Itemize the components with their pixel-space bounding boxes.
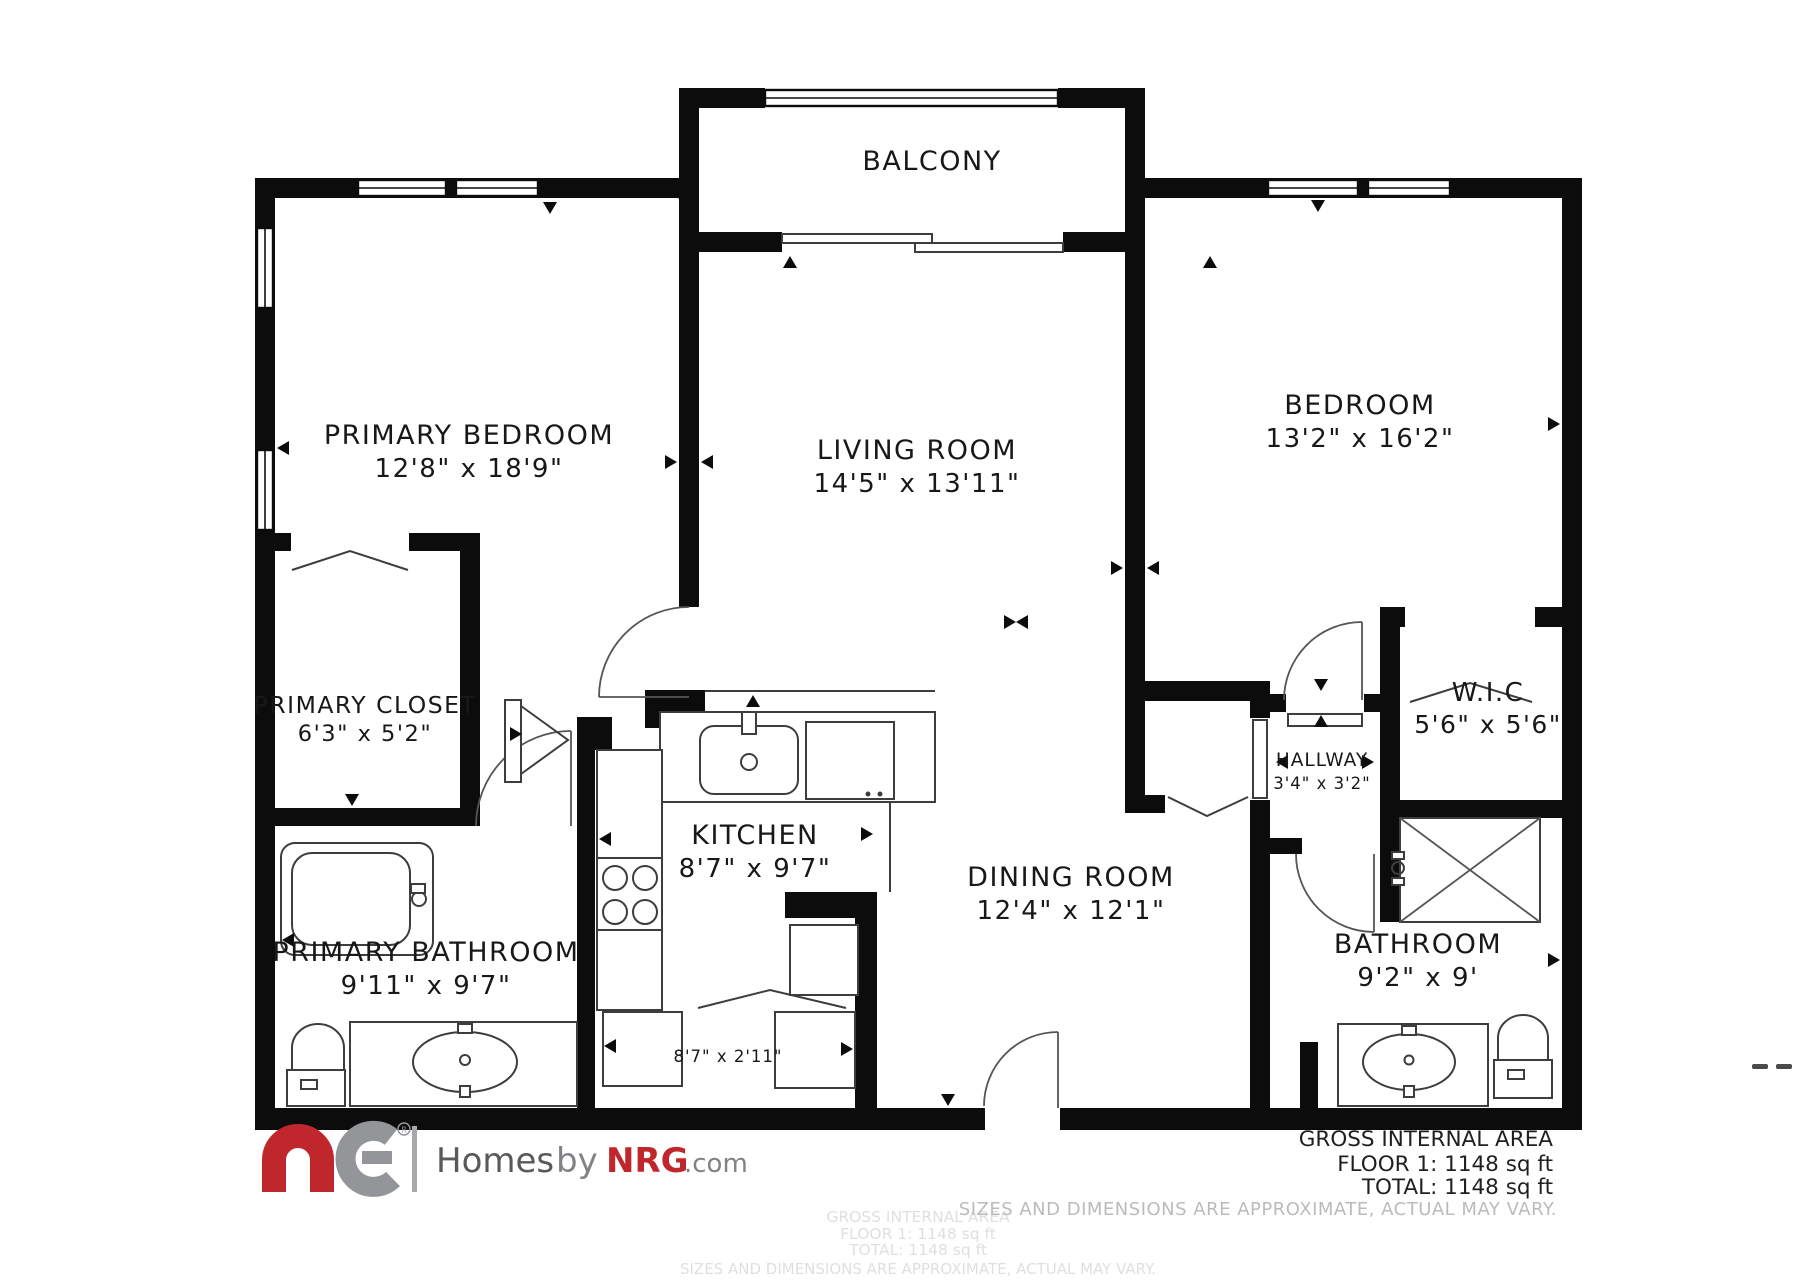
room-label-hallway: HALLWAY — [1276, 750, 1368, 771]
room-dims-primary-bathroom: 9'11" x 9'7" — [341, 971, 512, 1001]
room-label-kitchen: KITCHEN — [691, 820, 819, 851]
room-dims-bathroom: 9'2" x 9' — [1357, 963, 1478, 993]
closet-slider-icon — [292, 551, 408, 570]
logo-text-homes: Homes — [436, 1141, 554, 1181]
room-dims-primary-closet: 6'3" x 5'2" — [298, 721, 432, 747]
room-dims-dining-room: 12'4" x 12'1" — [977, 896, 1166, 926]
room-label-dining-room: DINING ROOM — [967, 862, 1175, 893]
room-label-living-room: LIVING ROOM — [817, 435, 1017, 466]
window-icon — [257, 228, 273, 308]
window-icon — [456, 180, 538, 196]
gross-internal-area-title: GROSS INTERNAL AREA — [1299, 1127, 1554, 1152]
bathroom-fixtures — [1338, 818, 1552, 1106]
door-leaf-icon — [505, 700, 568, 782]
entry-door-arc-icon — [984, 1032, 1058, 1108]
nrg-logo: R Homes by NRG .com — [274, 1123, 748, 1192]
door-arc-icon — [476, 731, 571, 826]
stove-icon — [597, 858, 662, 930]
floor-plan-drawing: BALCONY PRIMARY BEDROOM 12'8" x 18'9" LI… — [0, 0, 1810, 1280]
watermark-line: GROSS INTERNAL AREA — [826, 1208, 1010, 1226]
logo-text-com: .com — [684, 1149, 748, 1179]
balcony-sliding-door-icon — [782, 234, 1063, 252]
room-dims-hallway: 3'4" x 3'2" — [1273, 774, 1371, 793]
room-label-primary-bathroom: PRIMARY BATHROOM — [272, 937, 579, 968]
room-label-balcony: BALCONY — [862, 146, 1001, 177]
room-labels: BALCONY PRIMARY BEDROOM 12'8" x 18'9" LI… — [254, 146, 1562, 1066]
window-icon — [1368, 180, 1450, 196]
toilet-icon — [1494, 1015, 1552, 1098]
total-area-line: TOTAL: 1148 sq ft — [1361, 1175, 1553, 1200]
registered-mark: R — [401, 1126, 407, 1135]
disclaimer-text: SIZES AND DIMENSIONS ARE APPROXIMATE, AC… — [959, 1199, 1557, 1220]
pocket-door-icon — [1253, 720, 1267, 798]
balcony-window-icon — [765, 90, 1058, 106]
room-dims-bedroom: 13'2" x 16'2" — [1266, 424, 1455, 454]
page-marks — [1752, 1064, 1792, 1069]
door-arc-icon — [599, 607, 689, 697]
door-arc-icon — [1284, 622, 1362, 700]
vanity-sink-icon — [1338, 1024, 1488, 1106]
room-label-bathroom: BATHROOM — [1334, 929, 1502, 960]
coat-closet-slider-icon — [1168, 797, 1248, 816]
window-icon — [257, 450, 273, 530]
cabinet-icon — [790, 925, 858, 995]
window-icon — [1268, 180, 1358, 196]
laundry-nook-dims: 8'7" x 2'11" — [674, 1047, 783, 1066]
door-arc-icon — [1296, 854, 1374, 932]
vanity-sink-icon — [350, 1022, 577, 1106]
kitchen-fixtures — [597, 691, 935, 1088]
room-label-primary-bedroom: PRIMARY BEDROOM — [324, 420, 614, 451]
area-summary: GROSS INTERNAL AREA FLOOR 1: 1148 sq ft … — [959, 1127, 1557, 1220]
room-dims-wic: 5'6" x 5'6" — [1414, 710, 1562, 739]
floor-plan-page: BALCONY PRIMARY BEDROOM 12'8" x 18'9" LI… — [0, 0, 1810, 1280]
watermark-line: TOTAL: 1148 sq ft — [848, 1241, 987, 1259]
watermark-line: SIZES AND DIMENSIONS ARE APPROXIMATE, AC… — [680, 1260, 1156, 1278]
fridge-icon — [806, 722, 894, 799]
logo-divider — [412, 1126, 417, 1192]
nrg-logo-mark-icon: R — [274, 1123, 410, 1192]
room-dims-kitchen: 8'7" x 9'7" — [679, 854, 832, 884]
floor-area-line: FLOOR 1: 1148 sq ft — [1337, 1152, 1553, 1177]
room-label-bedroom: BEDROOM — [1284, 390, 1435, 421]
room-dims-primary-bedroom: 12'8" x 18'9" — [375, 454, 564, 484]
logo-text-by: by — [556, 1141, 598, 1181]
room-label-primary-closet: PRIMARY CLOSET — [254, 691, 477, 719]
shower-icon — [1392, 818, 1540, 922]
room-dims-living-room: 14'5" x 13'11" — [814, 469, 1021, 499]
toilet-icon — [287, 1024, 345, 1106]
logo-text-nrg: NRG — [606, 1141, 689, 1181]
room-label-wic: W.I.C — [1452, 678, 1525, 708]
window-icon — [358, 180, 446, 196]
